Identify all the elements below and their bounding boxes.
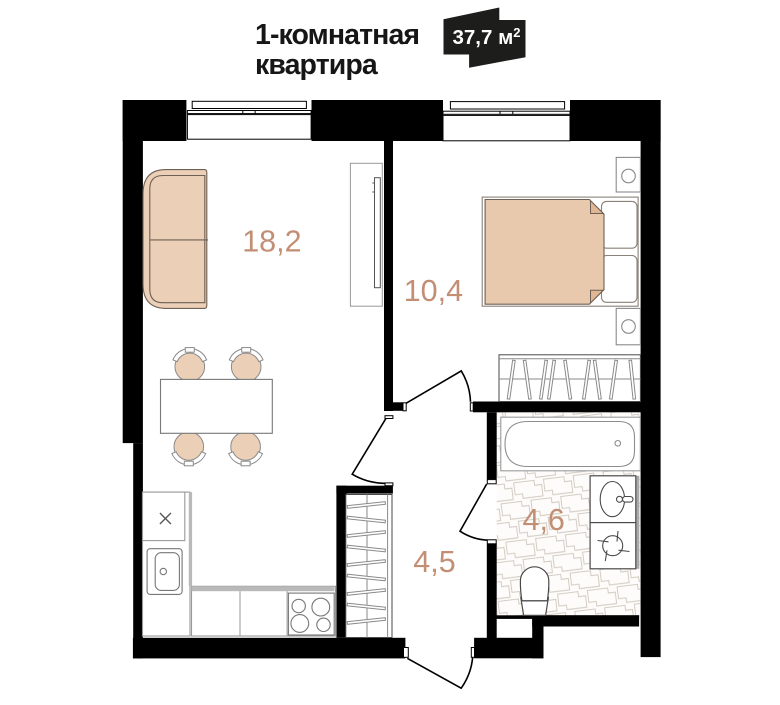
svg-text:квартира: квартира xyxy=(255,49,379,81)
svg-text:1-комнатная: 1-комнатная xyxy=(255,19,419,51)
svg-text:10,4: 10,4 xyxy=(404,274,463,308)
svg-text:4,5: 4,5 xyxy=(413,545,455,579)
svg-text:4,6: 4,6 xyxy=(522,503,564,537)
svg-text:18,2: 18,2 xyxy=(242,225,301,259)
svg-text:37,7 м2: 37,7 м2 xyxy=(453,25,521,49)
